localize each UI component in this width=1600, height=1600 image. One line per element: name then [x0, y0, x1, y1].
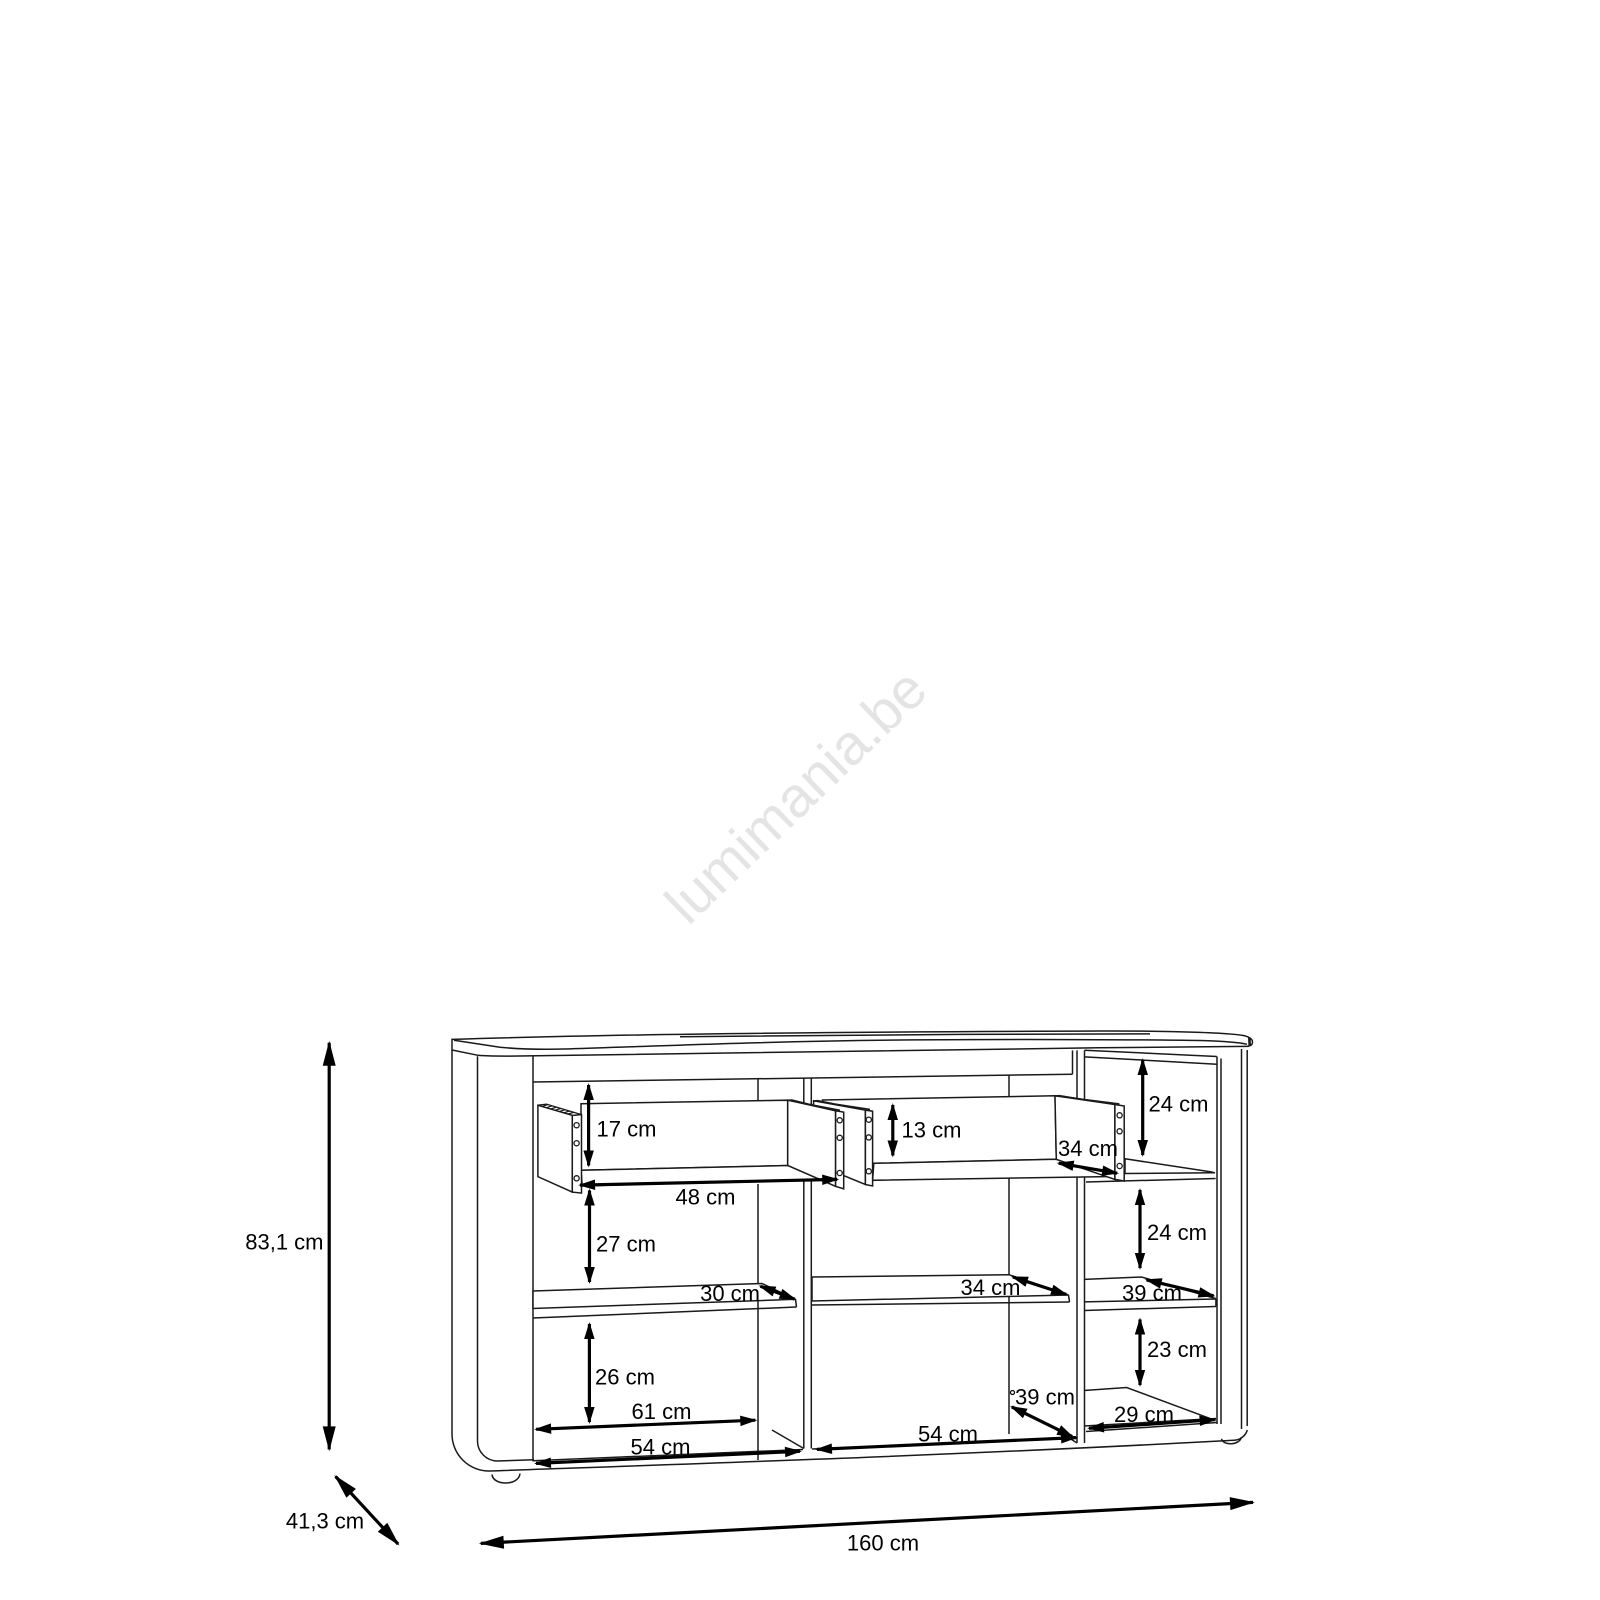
svg-text:30 cm: 30 cm	[700, 1281, 760, 1306]
svg-text:160 cm: 160 cm	[847, 1531, 919, 1556]
svg-text:23 cm: 23 cm	[1147, 1337, 1207, 1362]
svg-text:61 cm: 61 cm	[632, 1399, 692, 1424]
svg-text:54 cm: 54 cm	[918, 1422, 978, 1447]
svg-text:26 cm: 26 cm	[595, 1365, 655, 1390]
svg-text:24 cm: 24 cm	[1149, 1092, 1209, 1117]
svg-text:29 cm: 29 cm	[1114, 1402, 1174, 1427]
svg-text:39 cm: 39 cm	[1015, 1385, 1075, 1410]
svg-text:27 cm: 27 cm	[596, 1232, 656, 1257]
svg-text:13 cm: 13 cm	[902, 1118, 962, 1143]
svg-text:39 cm: 39 cm	[1122, 1281, 1182, 1306]
svg-text:34 cm: 34 cm	[961, 1275, 1021, 1300]
svg-text:41,3 cm: 41,3 cm	[286, 1509, 364, 1534]
svg-text:17 cm: 17 cm	[597, 1117, 657, 1142]
svg-text:24 cm: 24 cm	[1147, 1220, 1207, 1245]
svg-text:54 cm: 54 cm	[631, 1435, 691, 1460]
svg-text:34 cm: 34 cm	[1058, 1136, 1118, 1161]
svg-text:48 cm: 48 cm	[676, 1185, 736, 1210]
svg-text:83,1 cm: 83,1 cm	[245, 1230, 323, 1255]
